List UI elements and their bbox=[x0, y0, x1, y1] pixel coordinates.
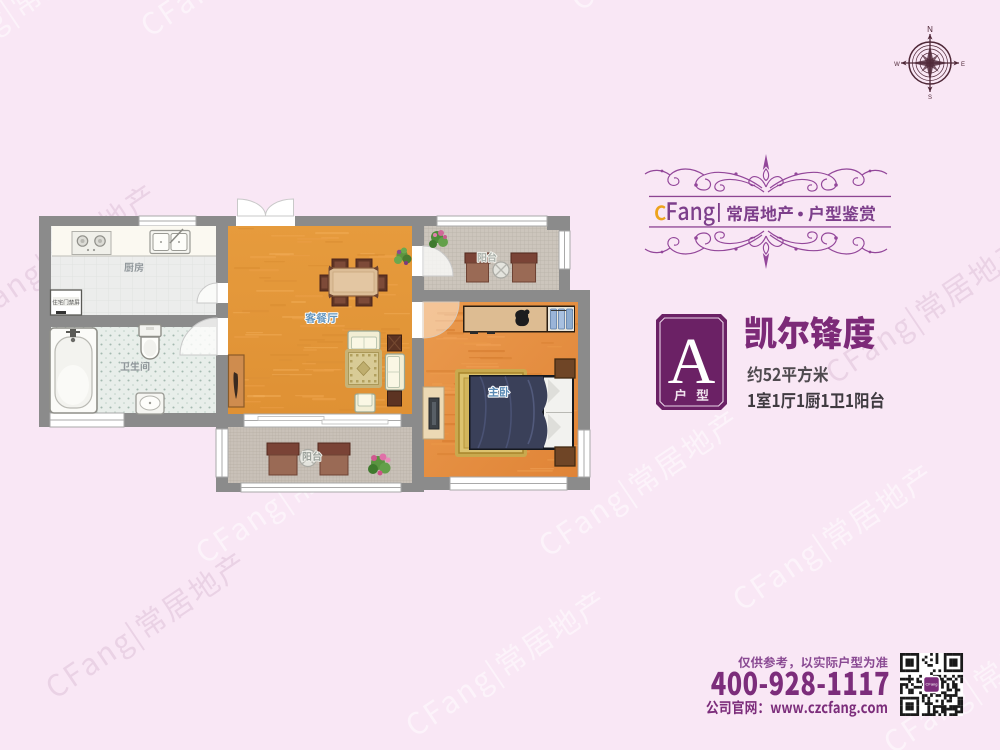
svg-text:住宅门禁屏: 住宅门禁屏 bbox=[52, 299, 80, 307]
svg-text:W: W bbox=[894, 62, 900, 68]
svg-text:S: S bbox=[928, 95, 932, 101]
svg-text:E: E bbox=[961, 62, 965, 68]
svg-text:A: A bbox=[668, 325, 716, 398]
svg-text:N: N bbox=[927, 25, 933, 34]
svg-text:CFang: CFang bbox=[925, 682, 937, 687]
